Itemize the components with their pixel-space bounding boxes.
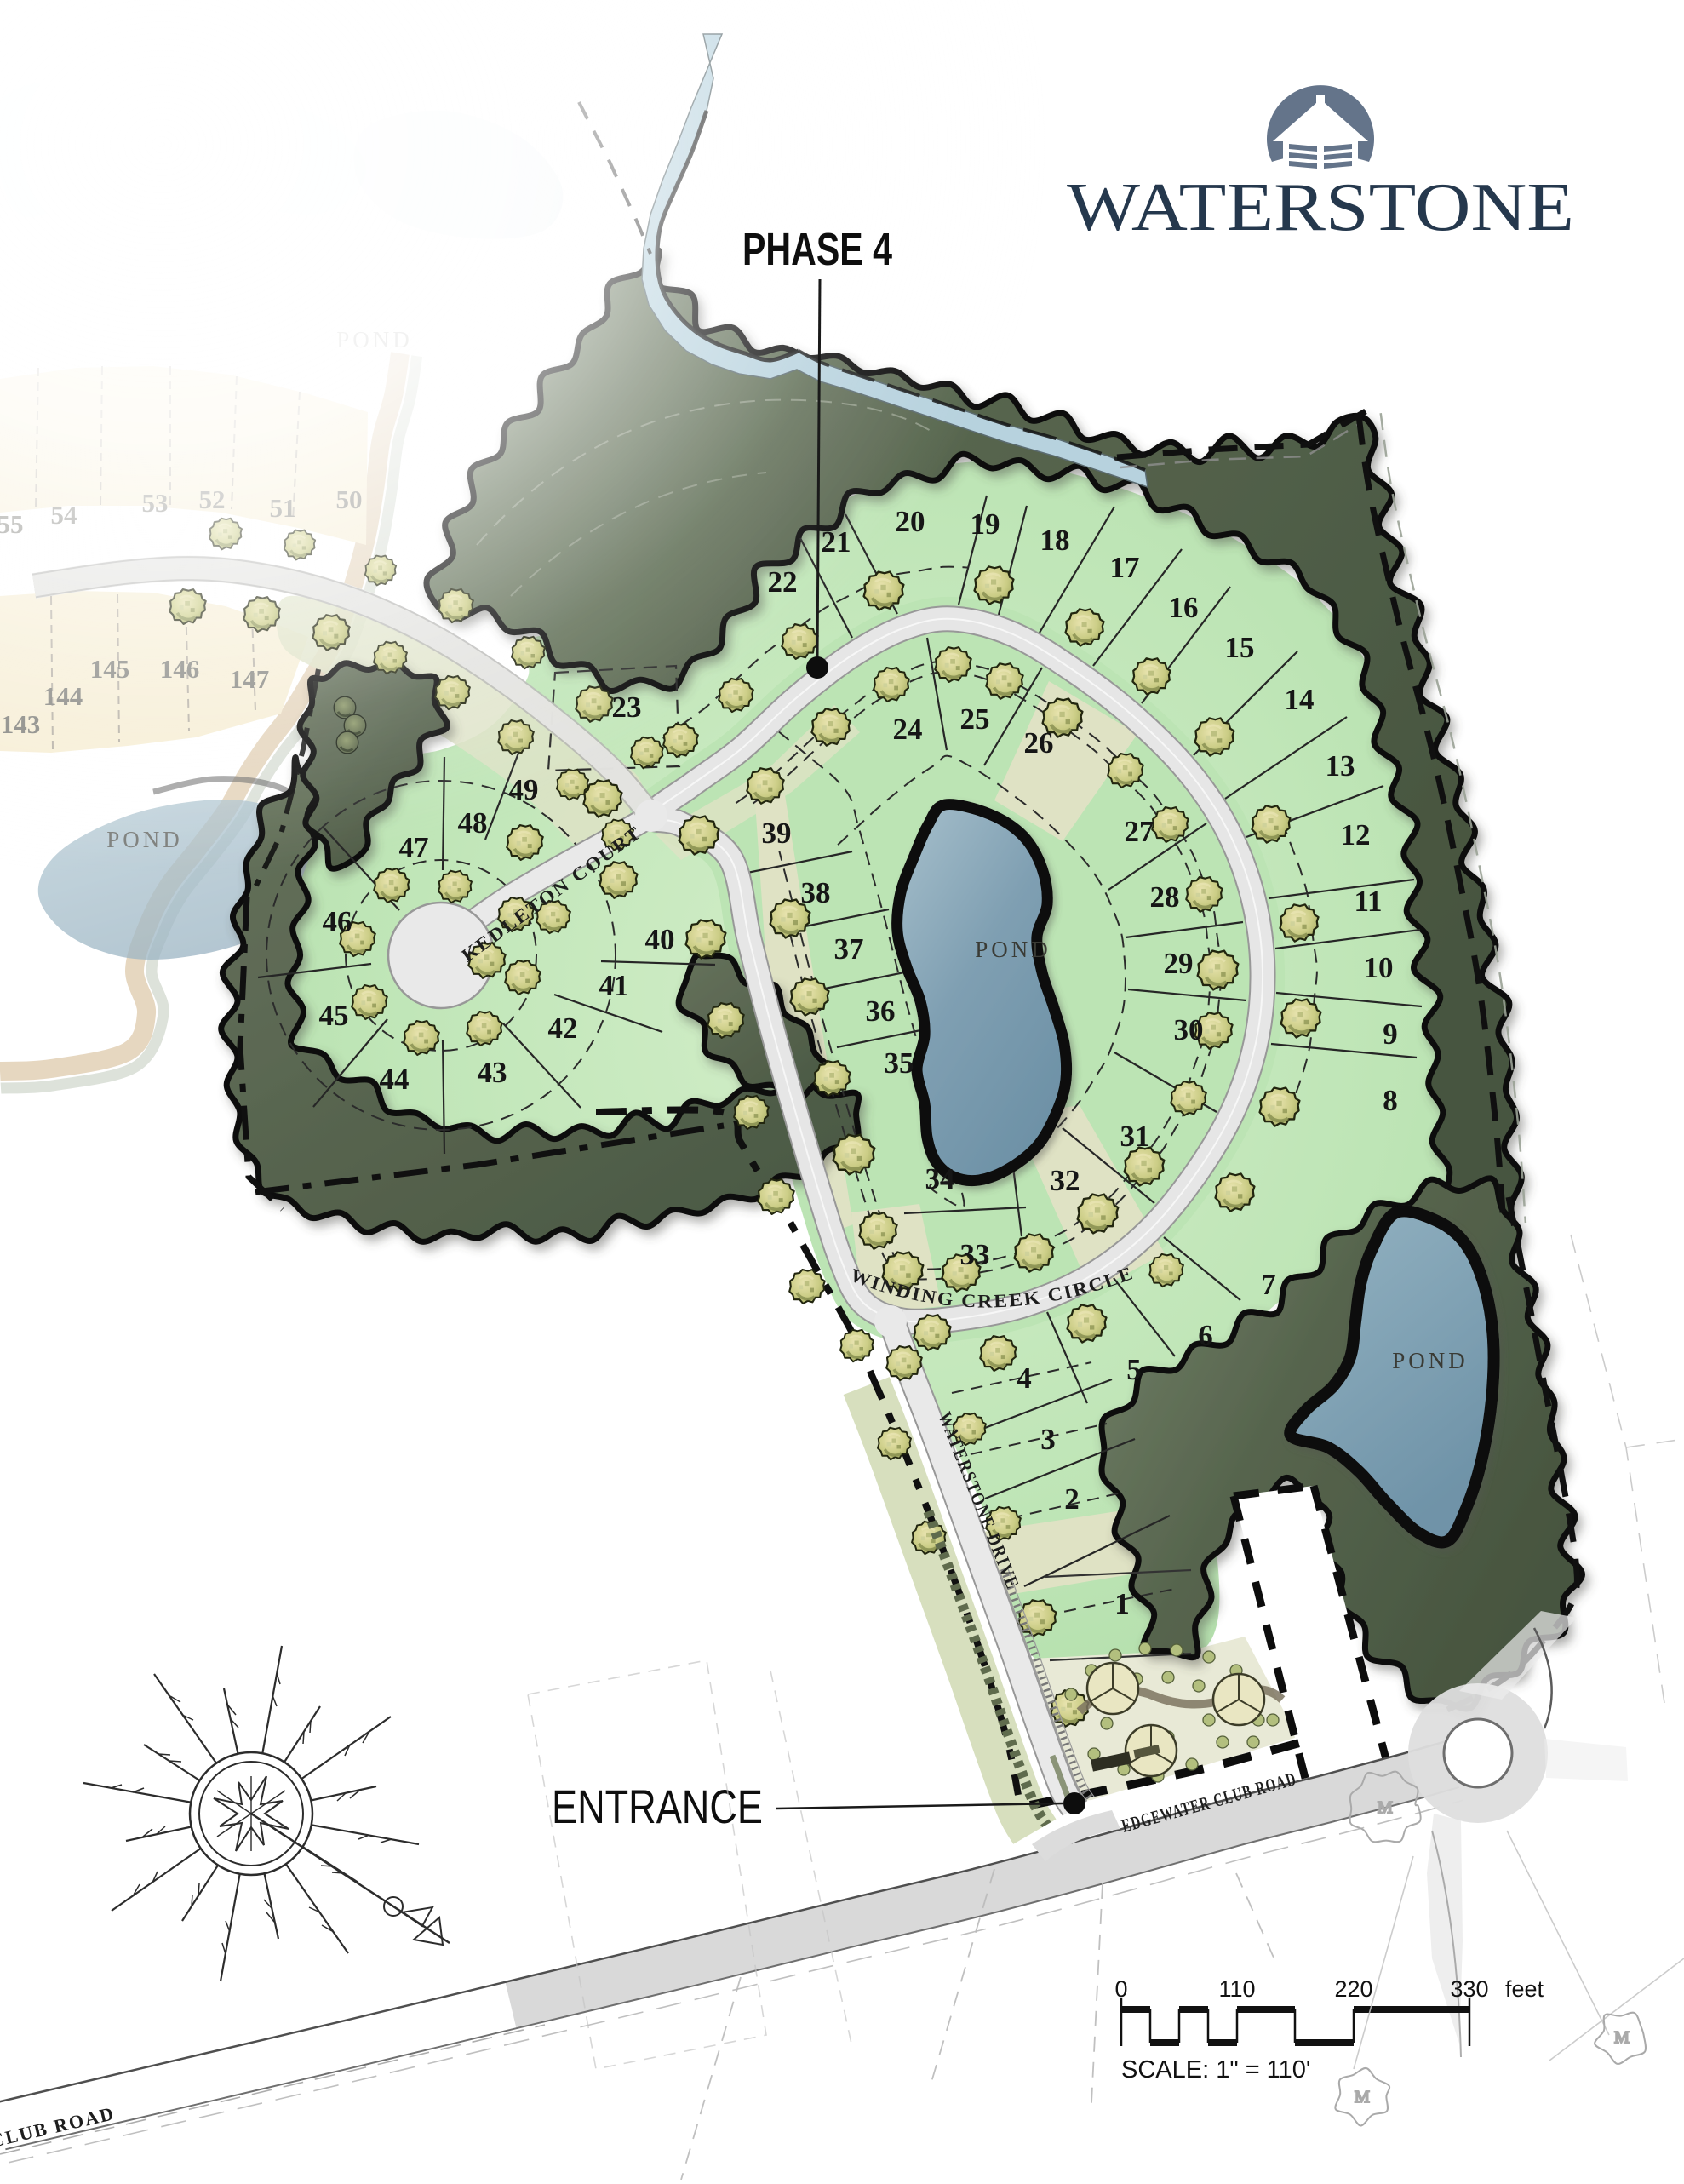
svg-text:43: 43: [478, 1056, 507, 1089]
svg-text:M: M: [1355, 2088, 1370, 2107]
svg-text:POND: POND: [1392, 1348, 1469, 1373]
svg-text:34: 34: [925, 1162, 955, 1195]
svg-text:26: 26: [1024, 726, 1054, 760]
svg-text:21: 21: [822, 525, 851, 559]
svg-text:19: 19: [971, 507, 1000, 541]
svg-text:30: 30: [1174, 1013, 1204, 1046]
svg-text:23: 23: [612, 691, 642, 724]
svg-text:POND: POND: [975, 937, 1051, 962]
svg-text:33: 33: [960, 1238, 990, 1271]
svg-text:feet: feet: [1505, 1976, 1544, 2002]
svg-text:6: 6: [1198, 1319, 1213, 1352]
svg-text:37: 37: [834, 932, 864, 966]
svg-text:22: 22: [768, 565, 798, 599]
svg-text:27: 27: [1125, 815, 1154, 848]
svg-text:25: 25: [960, 702, 990, 736]
svg-text:45: 45: [319, 999, 349, 1032]
svg-text:12: 12: [1341, 818, 1371, 851]
svg-text:ENTRANCE: ENTRANCE: [552, 1780, 763, 1833]
svg-text:44: 44: [380, 1063, 410, 1096]
svg-text:M: M: [1614, 2028, 1630, 2047]
svg-text:WATERSTONE: WATERSTONE: [1067, 170, 1574, 245]
svg-text:0: 0: [1114, 1976, 1127, 2002]
svg-text:28: 28: [1150, 880, 1180, 914]
svg-text:31: 31: [1120, 1120, 1150, 1153]
svg-text:38: 38: [801, 876, 831, 909]
svg-text:36: 36: [866, 995, 896, 1028]
svg-text:18: 18: [1040, 524, 1070, 557]
svg-text:29: 29: [1164, 947, 1194, 980]
svg-text:24: 24: [893, 713, 923, 746]
svg-text:SCALE: 1" = 110': SCALE: 1" = 110': [1121, 2056, 1310, 2084]
svg-text:42: 42: [548, 1012, 578, 1045]
svg-text:5: 5: [1126, 1353, 1142, 1386]
svg-text:39: 39: [762, 817, 792, 850]
svg-text:7: 7: [1261, 1268, 1276, 1301]
svg-text:M: M: [1378, 1798, 1393, 1817]
svg-text:17: 17: [1110, 551, 1140, 584]
svg-text:220: 220: [1334, 1976, 1372, 2002]
svg-text:46: 46: [323, 905, 352, 938]
svg-text:1: 1: [1114, 1587, 1130, 1620]
svg-text:13: 13: [1326, 749, 1355, 782]
svg-text:14: 14: [1285, 683, 1315, 716]
svg-text:8: 8: [1383, 1084, 1398, 1117]
svg-text:48: 48: [458, 806, 488, 840]
svg-text:40: 40: [645, 923, 675, 956]
svg-text:2: 2: [1064, 1482, 1080, 1516]
svg-text:32: 32: [1051, 1164, 1080, 1197]
svg-text:20: 20: [896, 505, 925, 538]
svg-text:41: 41: [599, 969, 629, 1002]
svg-text:330: 330: [1450, 1976, 1488, 2002]
svg-text:15: 15: [1225, 631, 1255, 664]
svg-text:10: 10: [1364, 951, 1394, 984]
svg-text:11: 11: [1354, 885, 1382, 918]
svg-text:49: 49: [509, 773, 539, 806]
svg-text:16: 16: [1169, 591, 1199, 624]
svg-text:9: 9: [1383, 1017, 1398, 1051]
svg-text:4: 4: [1017, 1361, 1032, 1395]
svg-text:35: 35: [885, 1046, 914, 1080]
svg-text:47: 47: [399, 831, 429, 864]
svg-text:110: 110: [1218, 1976, 1255, 2002]
svg-text:3: 3: [1040, 1423, 1056, 1456]
svg-text:PHASE 4: PHASE 4: [742, 224, 892, 275]
